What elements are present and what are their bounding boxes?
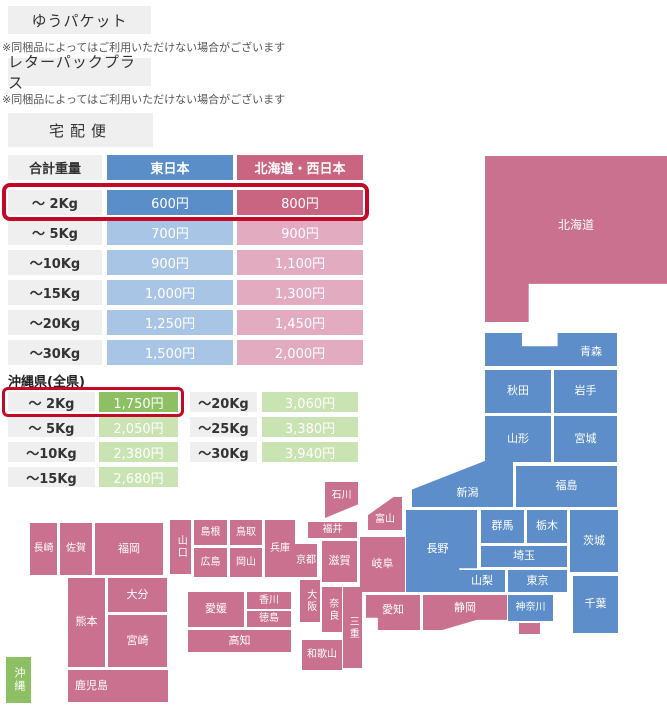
map-pref-nara-label: 奈良 [326,598,338,622]
map-pref-okayama: 岡山 [230,548,262,577]
takuhaibin-weight-cell: ～15Kg [8,280,102,305]
map-pref-saga: 佐賀 [60,523,92,575]
takuhaibin-west-price-cell: 1,300円 [237,280,363,305]
takuhaibin-title: 宅配便 [49,120,112,141]
shipping-rates-page: { "colors": { "orange": "#f3a64e", "gray… [0,0,667,711]
map-pref-iwate: 岩手 [554,370,617,413]
takuhaibin-weight-cell: ～ 2Kg [8,190,102,215]
yupacket-price: 198 [228,5,286,33]
map-pref-kagoshima-label: 鹿児島 [75,680,108,693]
map-pref-ishikawa-label: 石川 [332,490,352,502]
map-pref-gifu-label: 岐阜 [372,558,394,571]
map-pref-kyoto: 京都 [295,544,317,577]
yupacket-price-box: 全国一律 198 円 [155,3,310,35]
yupacket-label: ゆうパケット [31,10,127,31]
map-pref-saitama: 埼玉 [481,546,567,567]
map-pref-kumamoto: 熊本 [68,578,105,667]
map-pref-fukushima-label: 福島 [556,480,578,493]
map-pref-hiroshima: 広島 [194,548,227,577]
takuhaibin-west-price-cell: 1,450円 [237,310,363,335]
map-pref-nara: 奈良 [322,587,342,632]
map-pref-mie: 三重 [343,587,362,668]
okinawa-price-cell: 3,060円 [262,392,358,412]
map-pref-yamanashi-label: 山梨 [471,575,493,588]
map-pref-kagawa-label: 香川 [259,595,279,607]
map-pref-kochi: 高知 [188,630,291,652]
map-pref-shizuoka-label: 静岡 [454,602,476,615]
okinawa-weight-cell: ～20Kg [190,392,257,412]
map-pref-ibaraki-label: 茨城 [583,535,605,548]
map-pref-akita: 秋田 [485,370,551,413]
map-pref-ishikawa: 石川 [325,482,358,518]
map-pref-fukuoka-label: 福岡 [118,543,140,556]
map-pref-miyazaki-label: 宮崎 [127,635,149,648]
header-west: 北海道・西日本 [237,155,363,180]
map-pref-aichi-label: 愛知 [382,604,404,617]
map-pref-hyogo: 兵庫 [265,520,295,577]
letterpack-price-prefix: 全国一律 [162,61,222,82]
takuhaibin-east-price-cell: 900円 [107,250,233,275]
map-pref-yamagata-label: 山形 [507,433,529,446]
letterpack-label: レターパックプラス [8,51,151,93]
takuhaibin-title-box: 宅配便 [8,113,153,147]
map-pref-tottori-label: 鳥取 [236,527,256,539]
okinawa-weight-cell: ～ 5Kg [8,417,95,437]
map-pref-miyazaki: 宮崎 [108,615,167,667]
map-pref-hokkaido: 北海道 [485,156,667,322]
map-pref-nagasaki-label: 長崎 [34,543,54,555]
okinawa-title: 沖縄県(全県) [8,371,85,390]
map-pref-toyama-label: 富山 [375,514,395,526]
map-pref-fukui-label: 福井 [323,524,343,536]
map-pref-oita-label: 大分 [127,589,149,602]
map-pref-wakayama: 和歌山 [302,640,342,670]
map-pref-saga-label: 佐賀 [66,543,86,555]
okinawa-price-cell: 2,050円 [99,417,178,437]
map-pref-tochigi: 栃木 [527,510,567,543]
map-pref-toyama: 富山 [368,497,402,530]
letterpack-price: 600 [228,58,286,86]
map-pref-okayama-label: 岡山 [236,557,256,569]
map-pref-fukui: 福井 [308,522,357,538]
map-pref-akita-label: 秋田 [507,385,529,398]
map-pref-gifu: 岐阜 [360,537,405,592]
map-pref-chiba-label: 千葉 [585,598,607,611]
map-pref-nagano-label: 長野 [427,543,449,556]
map-pref-osaka-label: 大阪 [304,589,316,613]
map-pref-fukushima: 福島 [516,466,617,507]
takuhaibin-west-price-cell: 2,000円 [237,340,363,365]
map-pref-yamaguchi: 山口 [170,520,191,574]
takuhaibin-west-price-cell: 1,100円 [237,250,363,275]
map-pref-aomori: 青森 [485,333,617,366]
okinawa-price-cell: 1,750円 [99,392,178,412]
takuhaibin-east-price-cell: 700円 [107,220,233,245]
takuhaibin-weight-cell: ～20Kg [8,310,102,335]
map-pref-niigata-label: 新潟 [457,487,479,500]
map-pref-saitama-label: 埼玉 [513,550,535,563]
map-pref-miyagi: 宮城 [554,416,617,462]
map-pref-tochigi-label: 栃木 [536,520,558,533]
map-pref-hokkaido-label: 北海道 [558,219,594,233]
header-weight: 合計重量 [8,155,102,180]
yupacket-price-unit: 円 [288,9,303,30]
takuhaibin-weight-cell: ～30Kg [8,340,102,365]
takuhaibin-west-price-cell: 900円 [237,220,363,245]
map-pref-iwate-label: 岩手 [575,385,597,398]
map-pref-tokushima: 徳島 [247,611,291,627]
letterpack-price-unit: 円 [288,61,303,82]
map-pref-kumamoto-label: 熊本 [76,616,98,629]
header-east: 東日本 [107,155,233,180]
takuhaibin-east-price-cell: 1,000円 [107,280,233,305]
map-pref-yamanashi: 山梨 [459,570,505,592]
map-pref-shizuoka: 静岡 [423,595,507,630]
map-pref-gunma: 群馬 [481,510,524,543]
map-pref-okinawa: 沖縄 [6,657,31,703]
okinawa-price-cell: 2,680円 [99,467,178,487]
map-pref-kyoto-label: 京都 [296,555,316,567]
map-pref-aomori-label: 青森 [580,346,602,359]
takuhaibin-east-price-cell: 1,500円 [107,340,233,365]
letterpack-label-box: レターパックプラス [8,58,151,86]
takuhaibin-weight-cell: ～10Kg [8,250,102,275]
okinawa-price-cell: 2,380円 [99,442,178,462]
map-pref-okinawa-label: 沖縄 [12,667,25,693]
map-pref-aichi: 愛知 [366,595,420,630]
map-pref-miyagi-label: 宮城 [575,433,597,446]
map-pref-kanagawa-label: 神奈川 [516,602,546,614]
map-pref-niigata: 新潟 [412,461,513,507]
map-pref-shimane: 島根 [194,520,227,545]
okinawa-price-cell: 3,940円 [262,442,358,462]
okinawa-price-cell: 3,380円 [262,417,358,437]
okinawa-weight-cell: ～25Kg [190,417,257,437]
takuhaibin-east-price-cell: 1,250円 [107,310,233,335]
map-pref-nagasaki: 長崎 [30,523,57,575]
map-pref-wakayama-label: 和歌山 [307,649,337,661]
map-pref-tokyo: 東京 [508,570,567,592]
map-pref-tokushima-label: 徳島 [259,613,279,625]
okinawa-weight-cell: ～10Kg [8,442,95,462]
map-pref-kagoshima: 鹿児島 [68,670,168,702]
map-pref-tottori: 鳥取 [230,520,262,545]
map-pref-yamagata: 山形 [485,416,551,462]
map-pref-shiga: 滋賀 [322,541,357,582]
map-pref-kagawa: 香川 [247,592,291,609]
takuhaibin-west-price-cell: 800円 [237,190,363,215]
takuhaibin-weight-cell: ～ 5Kg [8,220,102,245]
map-pref-mie-label: 三重 [347,616,359,640]
map-pref-shiga-label: 滋賀 [329,555,351,568]
yupacket-label-box: ゆうパケット [8,6,151,34]
takuhaibin-east-price-cell: 600円 [107,190,233,215]
map-pref-chiba: 千葉 [573,576,618,633]
map-pref-tokyo-label: 東京 [527,575,549,588]
map-pref-kochi-label: 高知 [229,635,251,648]
map-pref-shimane-label: 島根 [201,527,221,539]
okinawa-weight-cell: ～15Kg [8,467,95,487]
map-pref-fukuoka: 福岡 [95,523,163,575]
map-pref-ehime-label: 愛媛 [205,603,227,616]
map-pref-yamaguchi-label: 山口 [175,535,187,559]
map-pref-ehime: 愛媛 [188,592,244,627]
okinawa-weight-cell: ～ 2Kg [8,392,95,412]
map-pref-kanagawa: 神奈川 [508,595,553,621]
letterpack-price-box: 全国一律 600 円 [155,55,310,88]
yupacket-price-prefix: 全国一律 [162,9,222,30]
map-pref-ibaraki: 茨城 [570,510,618,572]
map-pref-hiroshima-label: 広島 [201,557,221,569]
map-pref-oita: 大分 [108,578,167,612]
map-pref-hyogo-label: 兵庫 [270,543,290,555]
map-pref-osaka: 大阪 [300,580,320,622]
map-pref-gunma-label: 群馬 [492,520,514,533]
okinawa-weight-cell: ～30Kg [190,442,257,462]
map-pref-shizuoka-izu [519,623,540,634]
letterpack-note: ※同梱品によってはご利用いただけない場合がございます [2,91,285,107]
